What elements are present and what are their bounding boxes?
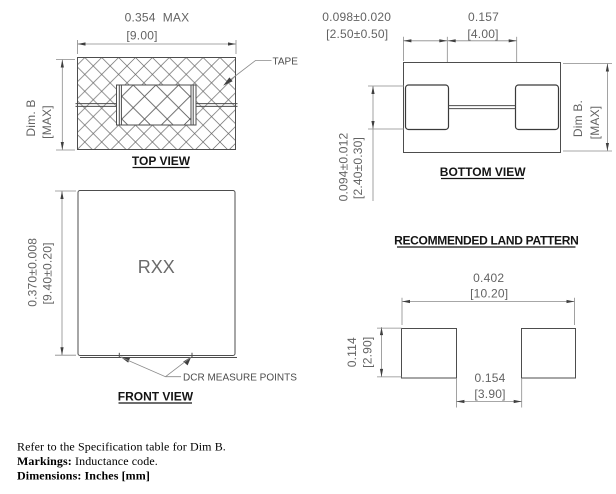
svg-text:Dim. B: Dim. B — [24, 99, 38, 136]
svg-text:TAPE: TAPE — [273, 57, 299, 68]
svg-text:0.154: 0.154 — [474, 371, 505, 385]
svg-text:BOTTOM VIEW: BOTTOM VIEW — [440, 165, 526, 179]
svg-text:FRONT VIEW: FRONT VIEW — [118, 390, 194, 404]
svg-text:[2.90]: [2.90] — [361, 337, 375, 368]
svg-text:0.098±0.020: 0.098±0.020 — [322, 10, 391, 24]
svg-text:0.114: 0.114 — [345, 337, 359, 367]
svg-text:[2.50±0.50]: [2.50±0.50] — [326, 27, 388, 41]
svg-text:Dimensions: Inches [mm]: Dimensions: Inches [mm] — [17, 468, 150, 482]
svg-text:RECOMMENDED LAND PATTERN: RECOMMENDED LAND PATTERN — [394, 234, 578, 248]
svg-text:[MAX]: [MAX] — [40, 105, 54, 139]
svg-text:DCR MEASURE POINTS: DCR MEASURE POINTS — [183, 373, 297, 384]
svg-text:[9.40±0.20]: [9.40±0.20] — [41, 242, 55, 304]
svg-text:0.402: 0.402 — [473, 271, 504, 285]
svg-text:[MAX]: [MAX] — [588, 106, 602, 140]
svg-text:0.354 MAX: 0.354 MAX — [125, 11, 190, 25]
svg-text:RXX: RXX — [138, 257, 175, 277]
svg-text:TOP VIEW: TOP VIEW — [132, 154, 191, 168]
svg-text:[2.40±0.30]: [2.40±0.30] — [351, 137, 365, 199]
svg-text:0.157: 0.157 — [468, 10, 499, 24]
svg-text:[10.20]: [10.20] — [470, 287, 508, 301]
svg-text:0.094±0.012: 0.094±0.012 — [337, 132, 351, 201]
svg-text:[3.90]: [3.90] — [474, 387, 505, 401]
svg-text:[4.00]: [4.00] — [467, 27, 498, 41]
svg-text:Markings: Inductance code.: Markings: Inductance code. — [17, 454, 158, 468]
svg-text:[9.00]: [9.00] — [126, 29, 157, 43]
svg-text:0.370±0.008: 0.370±0.008 — [26, 238, 40, 307]
svg-text:Dim B.: Dim B. — [571, 100, 585, 137]
svg-text:Refer to the Specification tab: Refer to the Specification table for Dim… — [17, 439, 226, 453]
